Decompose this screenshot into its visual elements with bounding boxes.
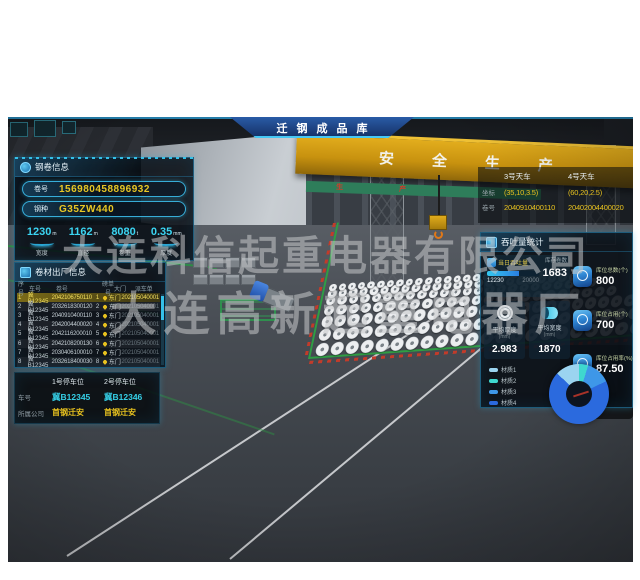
table-cell: 6 (92, 341, 103, 347)
table-cell: 2042106750110 (52, 295, 93, 301)
crane-cable (438, 175, 440, 217)
steel-coil (329, 341, 345, 355)
legend-item[interactable]: 材质4 (489, 397, 516, 408)
table-cell: 东门 (103, 357, 122, 366)
stat-arc (30, 240, 54, 246)
stat-label: 宽度 (21, 248, 63, 257)
table-cell: 2032618400030 (51, 359, 92, 365)
kpi-value: 800 (596, 275, 628, 287)
steel-coil (458, 295, 470, 306)
cylinder-icon (541, 307, 558, 319)
steel-coil (360, 302, 372, 313)
table-scrollbar[interactable] (161, 294, 164, 365)
steel-coil (386, 311, 400, 323)
steel-coil (424, 277, 433, 285)
steel-coil (360, 325, 375, 338)
avg-thickness-label: 平均厚度 (492, 325, 516, 334)
ceiling-panel (10, 122, 28, 137)
table-cell: 2040910400110 (52, 313, 93, 319)
table-cell: 5 (92, 331, 103, 337)
steel-coil (374, 324, 389, 337)
coord-label: 坐标 (482, 187, 504, 197)
table-cell: 202105040001 (121, 331, 159, 337)
coil-stat: 8080t卷重 (104, 222, 146, 257)
stat-value: 1162m (63, 222, 105, 240)
parking-spot-1-title: 1号停车位 (52, 377, 104, 387)
stat-number: 8080 (111, 226, 135, 238)
table-cell: 4 (18, 322, 28, 328)
steel-coil (405, 278, 414, 286)
table-cell: 3 (92, 313, 103, 319)
stat-value: 0.35mm (146, 222, 188, 240)
stat-number: 1162 (69, 226, 93, 238)
throughput-stats-panel: 吞吐量统计 当日吞吐量 12230 20000 库存卷数 1683 (480, 232, 633, 408)
gate-pin-icon (102, 359, 108, 365)
steel-coil (318, 328, 333, 341)
stat-unit: t (137, 231, 138, 237)
stat-value: 1230m (21, 222, 63, 240)
steel-coil (347, 314, 361, 326)
steel-coil (314, 342, 330, 356)
plate-label: 车号 (18, 392, 52, 402)
table-cell: 东门 (103, 293, 122, 302)
table-cell: 8 (18, 359, 28, 365)
steel-coil (434, 334, 450, 348)
column-header: 派车单 (135, 284, 159, 293)
steel-coil (372, 301, 384, 312)
throughput-label: 当日吞吐量 (498, 261, 528, 267)
shipment-table-panel: 卷材出厂信息 序号车号卷号磅单号大门派车单 1冀B123452042106750… (14, 262, 166, 368)
steel-coil (335, 304, 347, 315)
legend-item[interactable]: 材质2 (489, 375, 516, 386)
steel-coil (453, 275, 462, 283)
kpi-label: 库位总数(个) (596, 266, 628, 274)
stat-unit: m (52, 231, 56, 237)
stat-label: 卷重 (104, 248, 146, 257)
table-cell: 202105040001 (121, 313, 159, 319)
avg-width-unit: (mm) (544, 332, 556, 338)
steel-coil (323, 305, 335, 316)
coil-info-icon (20, 162, 31, 173)
table-cell: 7 (92, 350, 103, 356)
gate-pin-icon (102, 304, 108, 310)
table-cell: 1 (18, 295, 28, 301)
stat-unit: mm (173, 231, 181, 237)
steel-coil (439, 307, 453, 319)
coil-info-panel: 钢卷信息 卷号 156980458896932 钢种 G35ZW440 1230… (14, 157, 194, 261)
crane-3-name: 3号天车 (504, 171, 568, 182)
spot-2-company: 首钢迁安 (104, 407, 156, 418)
steel-coil (449, 333, 465, 347)
steel-coil (386, 280, 395, 288)
stat-label: 厚度 (146, 248, 188, 257)
crane-3-coil: 2040910400110 (504, 203, 568, 212)
steel-coil (446, 296, 458, 307)
avg-thickness-unit: (mm) (499, 334, 511, 340)
table-cell: 冀B12345 (28, 354, 52, 369)
coil-stat: 1230m宽度 (21, 222, 63, 257)
avg-width-value: 1870 (538, 344, 560, 355)
table-cell: 5 (18, 331, 28, 337)
steel-coil (421, 298, 433, 309)
gauge-badge-icon (573, 310, 592, 331)
slot-kpi: 库位占用(个)700 (573, 298, 633, 342)
slot-kpi: 库位总数(个)800 (573, 254, 633, 298)
parking-spot-2-title: 2号停车位 (104, 377, 156, 387)
steel-coil (395, 279, 404, 287)
gate-pin-icon (102, 332, 108, 338)
ceiling-panel (62, 121, 76, 134)
steel-coil (426, 308, 440, 320)
steel-coil (374, 338, 390, 352)
steel-coil (389, 337, 405, 351)
table-cell: 202105040001 (121, 295, 159, 301)
steel-coil (452, 306, 466, 318)
coil-number-value: 156980458896932 (59, 184, 150, 195)
steel-coil (413, 309, 427, 321)
parking-panel: 1号停车位 2号停车位 车号 冀B12345 冀B12346 所属公司 首钢迁安… (14, 372, 160, 424)
throughput-progress-bar (487, 271, 539, 276)
steel-coil (338, 283, 347, 291)
coil-number-label: 卷号 (23, 184, 59, 194)
inventory-count-label: 库存卷数 (542, 258, 567, 265)
avg-width-tile: 平均宽度 (mm) 1870 (529, 301, 570, 359)
spot-1-plate: 冀B12345 (52, 391, 104, 403)
steel-coil (373, 312, 387, 324)
steel-coil (465, 305, 479, 317)
daily-throughput-block: 当日吞吐量 12230 20000 库存卷数 1683 (484, 255, 570, 297)
steel-coil (404, 336, 420, 350)
steel-coil (430, 320, 445, 333)
column-header: 大门 (114, 284, 135, 293)
table-cell: 东门 (103, 339, 122, 348)
coil-dimension-stats: 1230m宽度1162m直径8080t卷重0.35mm厚度 (15, 217, 193, 257)
steel-coil (321, 315, 335, 327)
app-window: 安全生产 生产 迁钢成品库 钢卷信息 卷号 (0, 0, 640, 580)
steel-coil (433, 297, 445, 308)
steel-coil (458, 318, 473, 331)
inventory-count-value: 1683 (542, 267, 567, 279)
stats-panel-icon (486, 237, 497, 248)
gate-pin-icon (102, 313, 108, 319)
table-cell: 2032618300120 (51, 304, 92, 310)
stat-arc (71, 240, 95, 246)
spot-2-plate: 冀B12346 (104, 391, 156, 403)
company-label: 所属公司 (18, 408, 52, 418)
coil-icon (497, 305, 513, 321)
table-cell: 4 (92, 322, 103, 328)
spot-1-company: 首钢迁安 (52, 407, 104, 418)
scrollbar-thumb[interactable] (161, 296, 164, 320)
coil-label: 卷号 (482, 202, 504, 212)
table-cell: 202105040001 (121, 322, 159, 328)
gate-pin-icon (102, 322, 108, 328)
steel-coil (402, 322, 417, 335)
avg-width-label: 平均宽度 (537, 323, 561, 332)
crane-4-name: 4号天车 (568, 171, 636, 182)
table-cell: 1 (92, 295, 103, 301)
steel-coil (444, 319, 459, 332)
coil-stat: 1162m直径 (63, 222, 105, 257)
table-cell: 2 (92, 304, 103, 310)
crane-status-panel: 3号天车 4号天车 坐标 (35,10,3.5) (60,20,2.5) 卷号 … (478, 167, 633, 223)
stat-number: 0.35 (151, 226, 172, 238)
stat-unit: m (94, 231, 98, 237)
steel-coil (416, 321, 431, 334)
crane-4-coil: 20402004400020 (568, 203, 636, 212)
kpi-text: 库位占用(个)700 (596, 310, 628, 331)
table-cell: 202105040001 (121, 304, 159, 310)
steel-coil (328, 284, 337, 292)
scene-title-banner: 迁钢成品库 (230, 117, 414, 138)
avg-thickness-tile: 平均厚度 (mm) 2.983 (484, 301, 525, 359)
table-cell: 2030406100010 (51, 350, 92, 356)
ceiling-panel (34, 120, 56, 137)
crane-3-coord: (35,10,3.5) (504, 188, 568, 197)
stat-arc (113, 240, 137, 246)
table-cell: 2042004400020 (51, 322, 92, 328)
girder2-text: 生产 (336, 184, 462, 195)
steel-coil (376, 280, 385, 288)
table-cell: 东门 (103, 311, 122, 320)
table-cell: 2042116200010 (52, 331, 93, 337)
steel-coil (388, 323, 403, 336)
steel-coil (334, 315, 348, 327)
steel-coil (419, 335, 435, 349)
kpi-text: 库位总数(个)800 (596, 266, 628, 287)
throughput-max: 20000 (522, 278, 539, 284)
page-title: 迁钢成品库 (268, 120, 377, 136)
table-cell: 8 (92, 359, 103, 365)
material-legend: 材质1材质2材质3材质4 (489, 364, 516, 408)
legend-item[interactable]: 材质3 (489, 386, 516, 397)
legend-swatch (489, 368, 498, 372)
table-cell: 6 (18, 341, 28, 347)
legend-item[interactable]: 材质1 (489, 364, 516, 375)
steel-coil (366, 281, 375, 289)
shipment-panel-icon (20, 267, 31, 278)
kpi-label: 库位占用(个) (596, 310, 628, 318)
gate-pin-icon (102, 350, 108, 356)
steel-coil (414, 278, 423, 286)
material-donut-chart[interactable] (549, 364, 609, 424)
steel-coil (346, 326, 361, 339)
steel-coil (348, 303, 360, 314)
stat-value: 8080t (104, 222, 146, 240)
steel-coil (433, 276, 442, 284)
table-cell: 东门 (103, 302, 122, 311)
steel-coil (464, 332, 480, 346)
table-cell: 3 (18, 313, 28, 319)
table-body: 1冀B1234520421067501101东门2021050400012冀B1… (17, 293, 160, 367)
kpi-value: 700 (596, 319, 628, 331)
steel-coil (384, 300, 396, 311)
steel-grade-field: 钢种 G35ZW440 (22, 201, 186, 217)
kpi-value: 87.50 (596, 363, 633, 375)
crane-4-coord: (60,20,2.5) (568, 188, 636, 197)
legend-label: 材质3 (501, 387, 516, 396)
stats-panel-title: 吞吐量统计 (501, 236, 544, 248)
table-cell: 东门 (103, 321, 122, 330)
coil-info-title: 钢卷信息 (35, 161, 69, 173)
kpi-text: 库位占用率(%)87.50 (596, 354, 633, 375)
table-cell: 东门 (103, 348, 122, 357)
table-cell: 202105040001 (121, 341, 159, 347)
legend-swatch (489, 390, 498, 394)
legend-label: 材质2 (501, 376, 516, 385)
steel-coil (462, 274, 471, 282)
steel-coil (347, 282, 356, 290)
steel-coil (409, 299, 421, 310)
table-cell: 202105040001 (121, 359, 159, 365)
stat-label: 直径 (63, 248, 105, 257)
gate-pin-icon (102, 295, 108, 301)
steel-coil (344, 340, 360, 354)
steel-coil (399, 310, 413, 322)
steel-coil (360, 313, 374, 325)
table-cell: 2 (18, 304, 28, 310)
steel-coil (357, 282, 366, 290)
column-header: 卷号 (56, 284, 102, 293)
gate-pin-icon (102, 341, 108, 347)
table-cell: 7 (18, 350, 28, 356)
stat-arc (154, 240, 178, 246)
steel-grade-value: G35ZW440 (59, 204, 114, 215)
steel-coil (397, 300, 409, 311)
gauge-badge-icon (573, 266, 592, 287)
legend-label: 材质4 (501, 398, 516, 407)
kpi-label: 库位占用率(%) (596, 354, 633, 362)
table-cell: 2042108200130 (51, 341, 92, 347)
throughput-current: 12230 (487, 278, 504, 284)
steel-coil (443, 276, 452, 284)
legend-label: 材质1 (501, 365, 516, 374)
shipment-panel-title: 卷材出厂信息 (35, 266, 86, 278)
table-cell: 202105040001 (121, 350, 159, 356)
steel-coil (359, 339, 375, 353)
panel-tick-border (15, 157, 193, 159)
bar-chart-icon (487, 258, 496, 267)
coil-stat: 0.35mm厚度 (146, 222, 188, 257)
steel-grade-label: 钢种 (23, 204, 59, 214)
legend-swatch (489, 379, 498, 383)
legend-swatch (489, 401, 498, 405)
stat-number: 1230 (27, 226, 51, 238)
coil-number-field: 卷号 156980458896932 (22, 181, 186, 197)
table-cell: 东门 (103, 330, 122, 339)
steel-coil (332, 327, 347, 340)
table-row[interactable]: 8冀B1234520326184000308东门202105040001 (17, 357, 160, 366)
avg-thickness-value: 2.983 (492, 344, 517, 355)
